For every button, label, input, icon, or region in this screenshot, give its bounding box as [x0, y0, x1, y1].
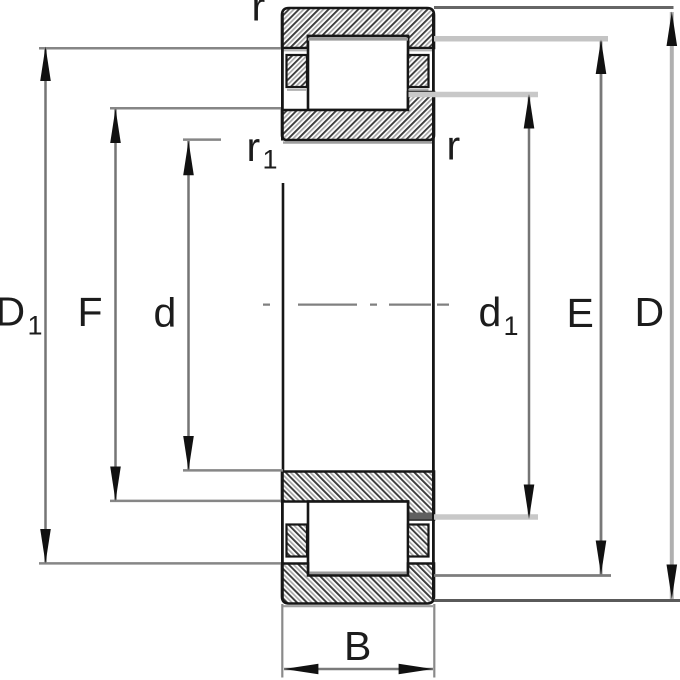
svg-text:F: F: [78, 289, 103, 335]
svg-text:d: d: [154, 290, 177, 336]
svg-text:r: r: [247, 124, 261, 170]
svg-text:d: d: [479, 289, 502, 335]
svg-text:1: 1: [28, 311, 43, 341]
svg-text:r: r: [252, 0, 266, 30]
svg-text:r: r: [447, 123, 461, 169]
svg-text:1: 1: [504, 311, 519, 341]
svg-text:D: D: [635, 289, 665, 335]
svg-text:D: D: [0, 289, 25, 335]
svg-text:1: 1: [263, 145, 278, 175]
svg-text:E: E: [567, 290, 594, 336]
svg-text:B: B: [344, 623, 371, 669]
